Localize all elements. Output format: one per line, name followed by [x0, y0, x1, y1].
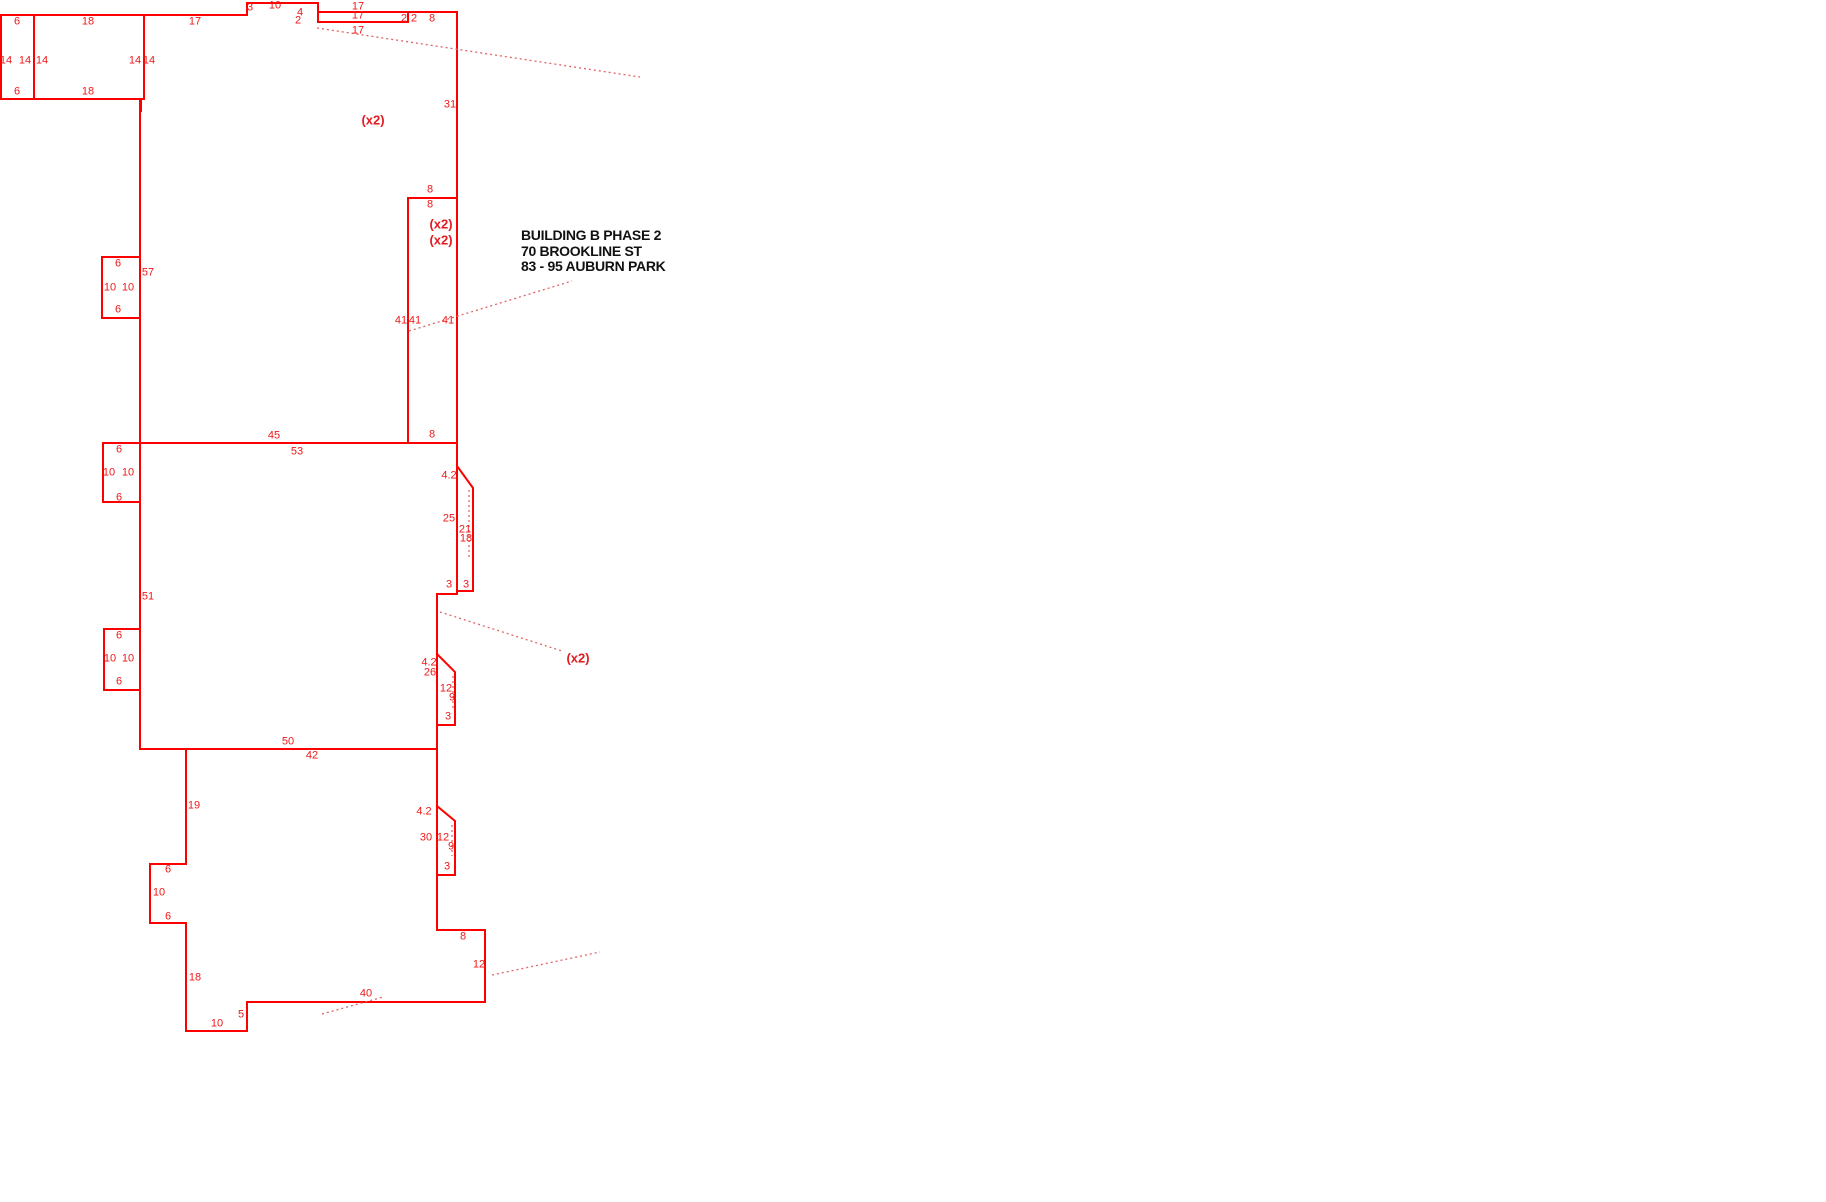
dimension-label: 3 [463, 580, 469, 591]
building-annotation: BUILDING B PHASE 2 70 BROOKLINE ST 83 - … [521, 228, 665, 275]
multiplier-label: (x2) [429, 218, 452, 231]
dimension-label: 41 [409, 316, 421, 327]
dimension-label: 53 [291, 447, 303, 458]
dimension-label: 41 [442, 316, 454, 327]
floor-plan-outline [0, 0, 1826, 1202]
dimension-label: 6 [14, 87, 20, 98]
dimension-label: 6 [115, 259, 121, 270]
dimension-label: 17 [352, 26, 364, 37]
dimension-label: 3 [444, 862, 450, 873]
building-annotation-line1: BUILDING B PHASE 2 [521, 228, 665, 244]
dimension-label: 10 [104, 283, 116, 294]
dimension-label: 2 [295, 16, 301, 27]
leader-top [317, 28, 640, 77]
dimension-label: 8 [429, 430, 435, 441]
dimension-label: 10 [104, 654, 116, 665]
dimension-label: 41 [395, 316, 407, 327]
building-annotation-line2: 70 BROOKLINE ST [521, 244, 665, 260]
dimension-label: 50 [282, 737, 294, 748]
dimension-label: 3 [446, 580, 452, 591]
multiplier-label: (x2) [361, 114, 384, 127]
multiplier-label: (x2) [566, 652, 589, 665]
dimension-label: 18 [82, 17, 94, 28]
dimension-label: 10 [103, 468, 115, 479]
building-annotation-line3: 83 - 95 AUBURN PARK [521, 259, 665, 275]
dimension-label: 14 [129, 56, 141, 67]
left-edge [140, 99, 141, 749]
dimension-label: 6 [115, 305, 121, 316]
dimension-label: 6 [116, 445, 122, 456]
dimension-label: 4.2 [441, 471, 456, 482]
dimension-label: 10 [122, 654, 134, 665]
dimension-label: 18 [82, 87, 94, 98]
dimension-label: 18 [189, 973, 201, 984]
dimension-label: 26 [424, 668, 436, 679]
multiplier-label: (x2) [429, 234, 452, 247]
dimension-label: 14 [19, 56, 31, 67]
dimension-label: 18 [460, 534, 472, 545]
drawing-canvas: 6181714141414146183104217171722831(x2)88… [0, 0, 1826, 1202]
dimension-label: 3 [445, 712, 451, 723]
dimension-label: 12 [473, 960, 485, 971]
leader-bottom [322, 997, 383, 1014]
dimension-label: 8 [427, 185, 433, 196]
leader-x2-mid [440, 612, 562, 651]
dimension-label: 8 [427, 200, 433, 211]
leader-bottom-right [492, 952, 600, 975]
leader-building-text [409, 281, 572, 331]
dimension-label: 40 [360, 989, 372, 1000]
dimension-label: 6 [14, 17, 20, 28]
dimension-label: 10 [122, 283, 134, 294]
dimension-label: 31 [444, 100, 456, 111]
dimension-label: 6 [116, 493, 122, 504]
dimension-label: 9 [448, 842, 454, 853]
dimension-label: 8 [429, 14, 435, 25]
dimension-label: 14 [36, 56, 48, 67]
dimension-label: 6 [116, 631, 122, 642]
dimension-label: 2 [411, 14, 417, 25]
dimension-label: 57 [142, 268, 154, 279]
dimension-label: 17 [352, 11, 364, 22]
dimension-label: 10 [122, 468, 134, 479]
dimension-label: 14 [143, 56, 155, 67]
dimension-label: 17 [189, 17, 201, 28]
dimension-label: 10 [153, 888, 165, 899]
dimension-label: 6 [165, 912, 171, 923]
dimension-label: 9 [449, 693, 455, 704]
lower-outline [150, 749, 485, 1031]
dimension-label: 51 [142, 592, 154, 603]
dimension-label: 2 [401, 14, 407, 25]
dimension-label: 8 [460, 932, 466, 943]
dimension-label: 3 [247, 3, 253, 14]
dimension-label: 10 [211, 1019, 223, 1030]
dimension-label: 30 [420, 833, 432, 844]
dimension-label: 4.2 [416, 807, 431, 818]
dimension-label: 42 [306, 751, 318, 762]
dimension-label: 19 [188, 801, 200, 812]
dimension-label: 25 [443, 514, 455, 525]
dimension-label: 6 [116, 677, 122, 688]
dimension-label: 6 [165, 865, 171, 876]
dimension-label: 5 [238, 1010, 244, 1021]
dimension-label: 14 [0, 56, 12, 67]
dimension-label: 10 [269, 1, 281, 12]
dimension-label: 45 [268, 431, 280, 442]
